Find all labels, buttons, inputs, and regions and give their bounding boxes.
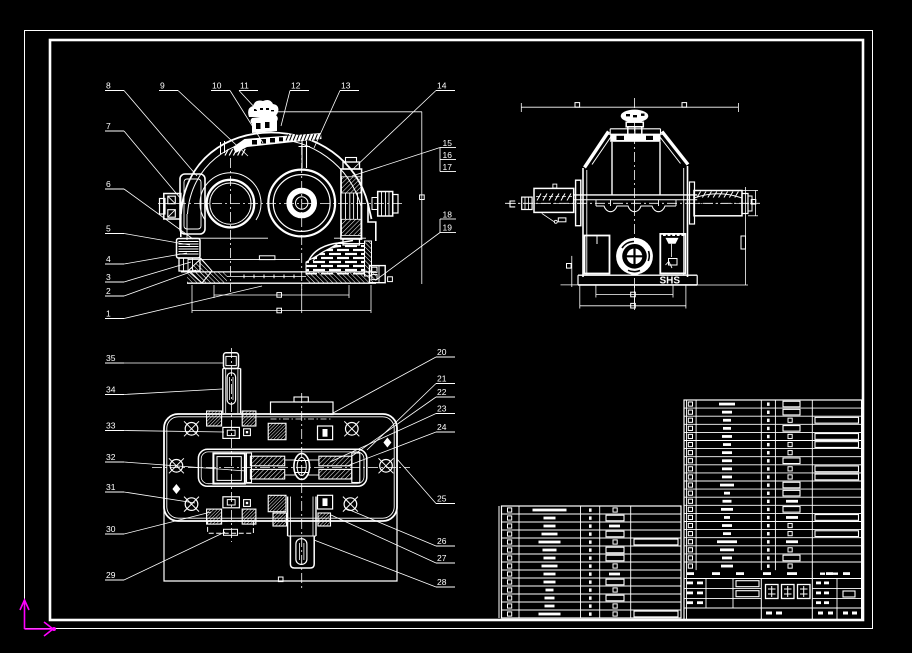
svg-text:15: 15 bbox=[443, 138, 453, 148]
svg-text:20: 20 bbox=[437, 347, 447, 357]
svg-text:34: 34 bbox=[106, 385, 116, 395]
svg-text:7: 7 bbox=[106, 121, 111, 131]
svg-text:23: 23 bbox=[437, 404, 447, 414]
svg-text:13: 13 bbox=[341, 81, 351, 91]
svg-text:27: 27 bbox=[437, 553, 447, 563]
svg-text:24: 24 bbox=[437, 422, 447, 432]
svg-text:26: 26 bbox=[437, 536, 447, 546]
svg-text:4: 4 bbox=[106, 254, 111, 264]
svg-text:10: 10 bbox=[212, 81, 222, 91]
svg-text:9: 9 bbox=[160, 81, 165, 91]
svg-text:33: 33 bbox=[106, 421, 116, 431]
svg-text:3: 3 bbox=[106, 272, 111, 282]
svg-text:28: 28 bbox=[437, 577, 447, 587]
svg-text:12: 12 bbox=[291, 81, 301, 91]
svg-text:21: 21 bbox=[437, 374, 447, 384]
svg-text:22: 22 bbox=[437, 387, 447, 397]
svg-text:30: 30 bbox=[106, 524, 116, 534]
svg-text:5: 5 bbox=[106, 224, 111, 234]
svg-text:17: 17 bbox=[443, 162, 453, 172]
svg-text:1: 1 bbox=[106, 309, 111, 319]
svg-text:32: 32 bbox=[106, 452, 116, 462]
svg-text:8: 8 bbox=[106, 81, 111, 91]
svg-text:25: 25 bbox=[437, 494, 447, 504]
svg-text:31: 31 bbox=[106, 482, 116, 492]
svg-text:18: 18 bbox=[443, 210, 453, 220]
svg-text:19: 19 bbox=[443, 223, 453, 233]
svg-text:29: 29 bbox=[106, 570, 116, 580]
svg-text:6: 6 bbox=[106, 179, 111, 189]
svg-text:11: 11 bbox=[240, 81, 249, 91]
svg-text:35: 35 bbox=[106, 353, 116, 363]
svg-text:2: 2 bbox=[106, 286, 111, 296]
svg-text:14: 14 bbox=[437, 81, 447, 91]
svg-text:16: 16 bbox=[443, 150, 453, 160]
